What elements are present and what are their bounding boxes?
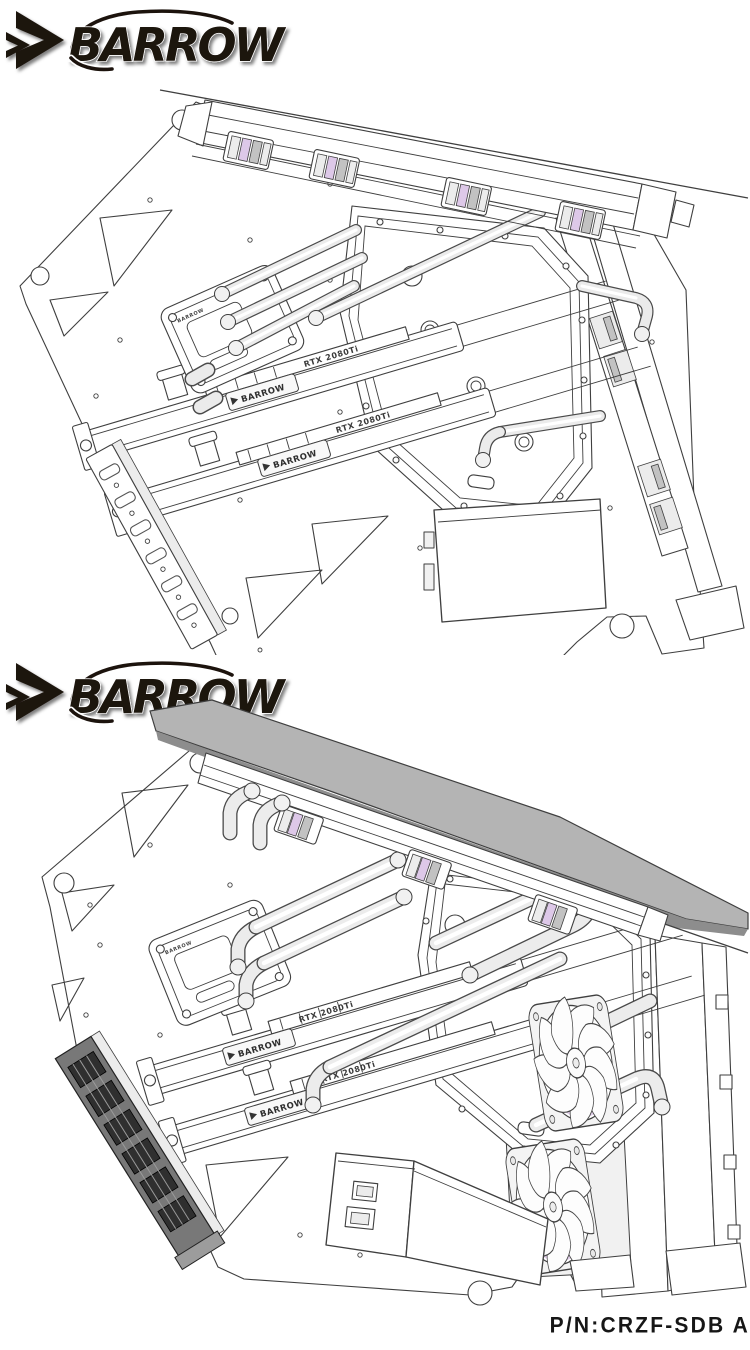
brand-wordmark: BARROW xyxy=(68,18,287,72)
technical-drawing-top: BARROW RTX 2080Ti BARROW RTX 2080Ti xyxy=(0,80,750,655)
product-page: BARROW xyxy=(0,0,750,1350)
barrow-arrow-icon xyxy=(6,11,64,69)
part-number: P/N:CRZF-SDB A xyxy=(512,1313,750,1338)
psu xyxy=(424,499,606,622)
technical-drawing-bottom: BARROW RTX 2080Ti BARROW RTX 2080Ti xyxy=(0,695,750,1315)
brand-logo-top: BARROW xyxy=(4,2,304,84)
